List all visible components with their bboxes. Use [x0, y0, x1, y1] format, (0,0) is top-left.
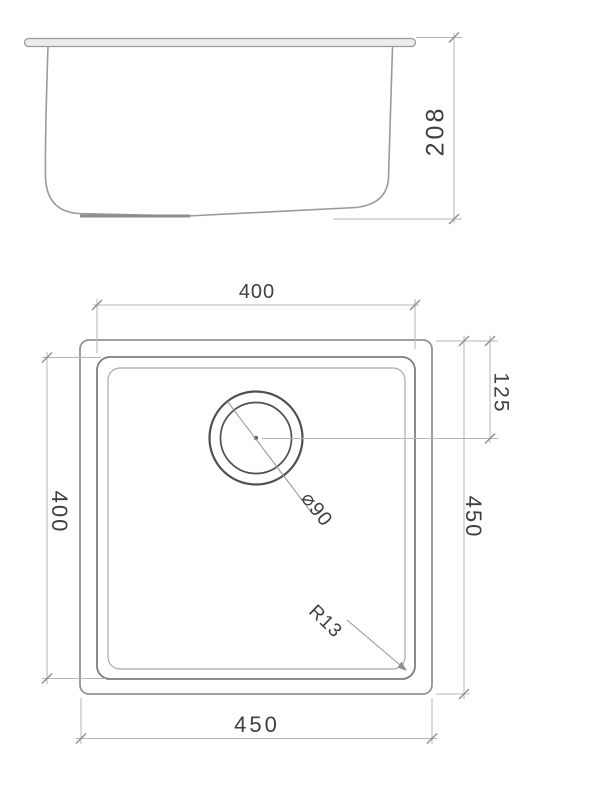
leader-arrowhead — [398, 662, 408, 672]
outer-rim-outline — [80, 340, 432, 694]
radius-leader-line — [347, 620, 406, 670]
dim-label-drain-offset: 125 — [489, 372, 512, 413]
dim-label-depth: 208 — [422, 106, 450, 157]
dim-label-left-height: 400 — [47, 491, 72, 534]
dim-label-right-height: 450 — [461, 496, 486, 539]
dim-depth: 208 — [333, 33, 462, 225]
technical-drawing-page: 208 ⌀90 400 — [0, 0, 605, 800]
dim-corner-radius: R13 — [304, 601, 407, 671]
flange-bar — [25, 39, 416, 47]
dim-drain-diameter: ⌀90 — [228, 402, 337, 532]
sink-drawing-svg: 208 ⌀90 400 — [0, 0, 605, 800]
bowl-outline — [45, 47, 392, 216]
dim-label-drain-diameter: ⌀90 — [296, 488, 336, 531]
plan-view: ⌀90 400 400 450 — [42, 281, 512, 744]
dim-top-width: 400 — [92, 281, 420, 353]
dim-label-corner-radius: R13 — [304, 601, 346, 642]
dim-right-height: 450 — [436, 336, 498, 699]
bowl-rim-outline — [97, 357, 415, 679]
dim-label-top-width: 400 — [239, 281, 275, 303]
side-view: 208 — [25, 33, 463, 225]
bowl-bottom-outline — [108, 368, 405, 669]
dim-bottom-width: 450 — [76, 698, 437, 744]
dim-label-bottom-width: 450 — [234, 712, 280, 737]
dim-drain-offset: 125 — [262, 336, 512, 444]
